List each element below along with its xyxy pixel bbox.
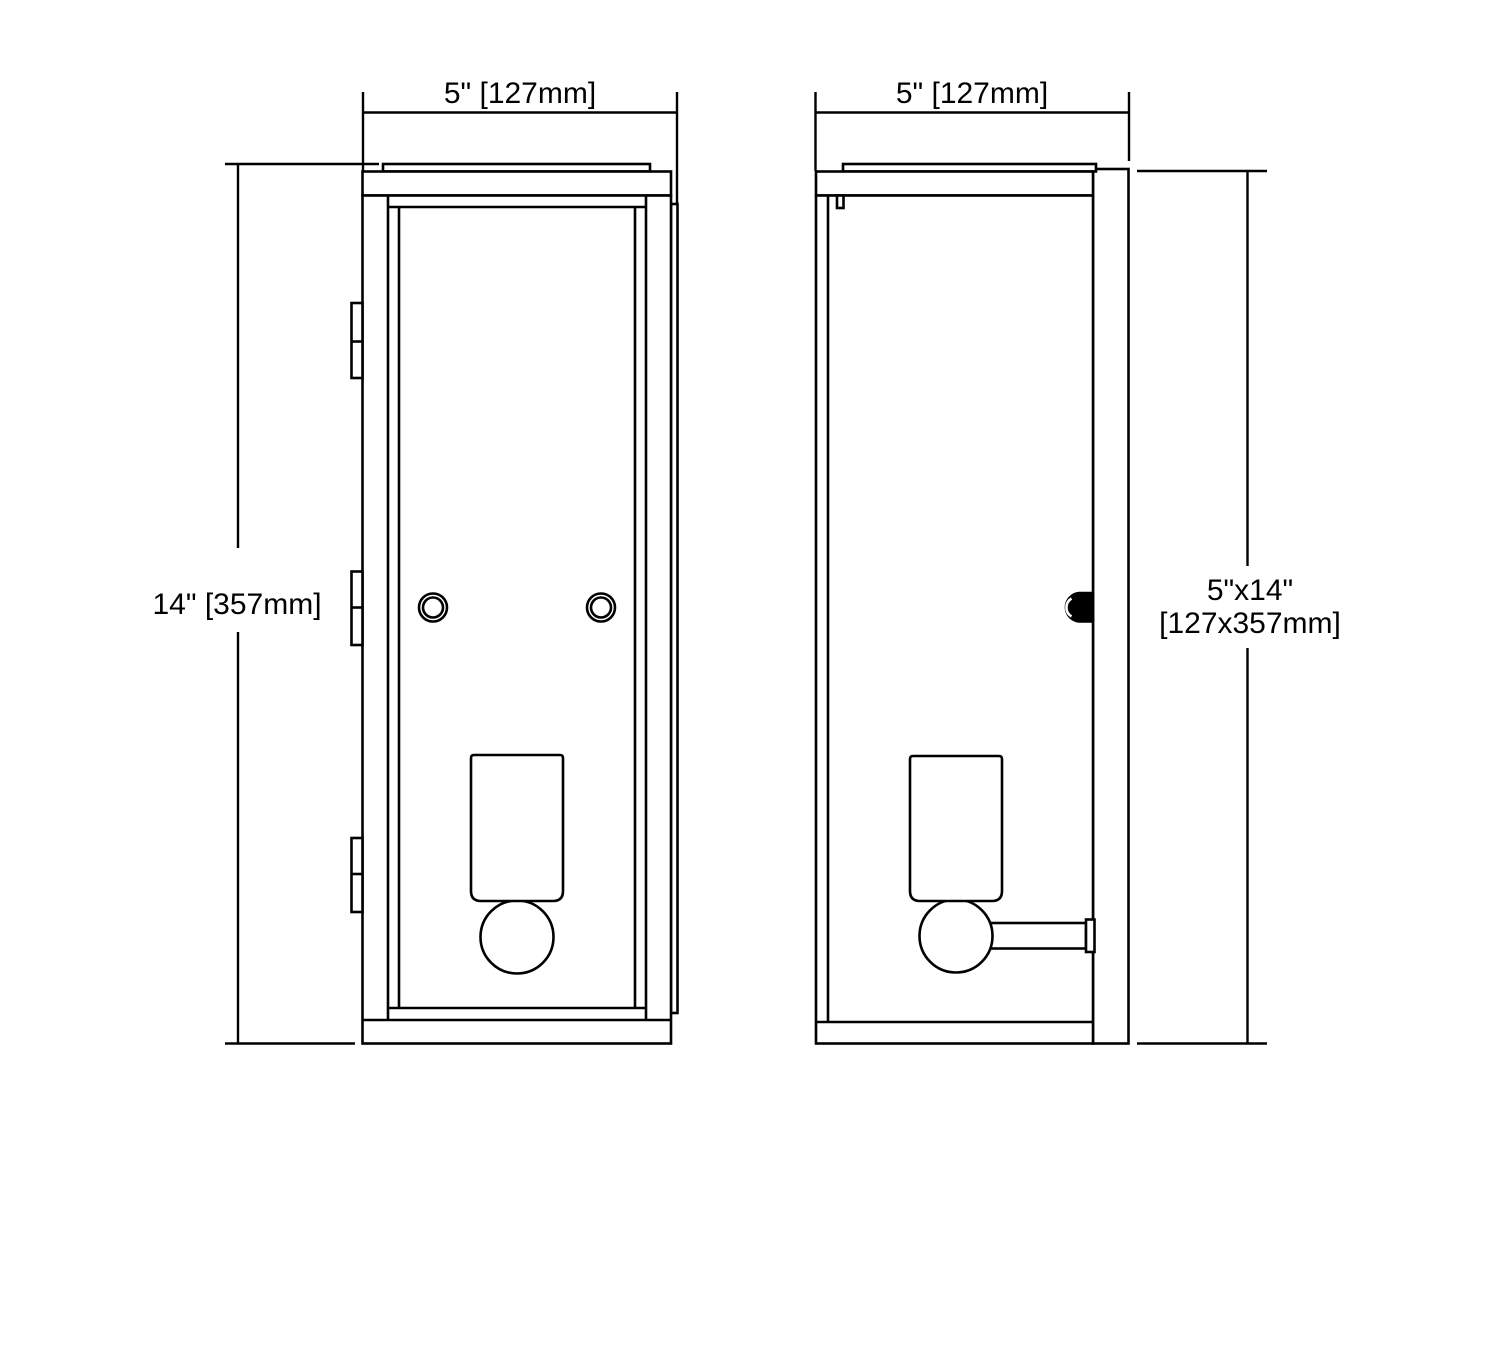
drawing-canvas: 5" [127mm] 5" [127mm] 14" [357mm] 5"x14"… bbox=[0, 0, 1500, 1356]
front-screw-left-inner bbox=[423, 598, 443, 618]
dimension-front-height: 14" [357mm] bbox=[152, 164, 379, 1044]
side-crown-band bbox=[816, 172, 1093, 196]
dimension-overall-size: 5"x14" [127x357mm] bbox=[1137, 171, 1341, 1044]
front-lamp-socket bbox=[471, 755, 563, 901]
front-crown-band bbox=[363, 172, 672, 196]
front-height-label: 14" [357mm] bbox=[152, 588, 321, 621]
overall-size-label-line2: [127x357mm] bbox=[1159, 607, 1341, 640]
front-width-label: 5" [127mm] bbox=[444, 77, 596, 110]
dimension-drawing: 5" [127mm] 5" [127mm] 14" [357mm] 5"x14"… bbox=[0, 0, 1500, 1356]
front-hinge-middle bbox=[352, 572, 363, 646]
front-view-drawing bbox=[352, 164, 678, 1044]
dimension-side-width: 5" [127mm] bbox=[816, 77, 1130, 171]
side-mounting-arm bbox=[980, 923, 1086, 949]
front-hinge-bottom bbox=[352, 838, 363, 912]
side-set-screw-body bbox=[1065, 593, 1093, 623]
side-set-screw-knob bbox=[1065, 593, 1093, 623]
front-screw-right-inner bbox=[591, 598, 611, 618]
side-lamp-socket bbox=[910, 756, 1002, 901]
side-arm-flange bbox=[1086, 920, 1095, 953]
side-view-drawing bbox=[816, 164, 1129, 1044]
side-bulb-circle bbox=[920, 900, 993, 973]
overall-size-label-line1: 5"x14" bbox=[1207, 574, 1293, 607]
side-door-clip bbox=[837, 196, 844, 209]
side-back-plate bbox=[1093, 169, 1129, 1044]
front-hinge-top bbox=[352, 303, 363, 378]
side-width-label: 5" [127mm] bbox=[896, 77, 1048, 110]
front-bulb-circle bbox=[481, 901, 554, 974]
